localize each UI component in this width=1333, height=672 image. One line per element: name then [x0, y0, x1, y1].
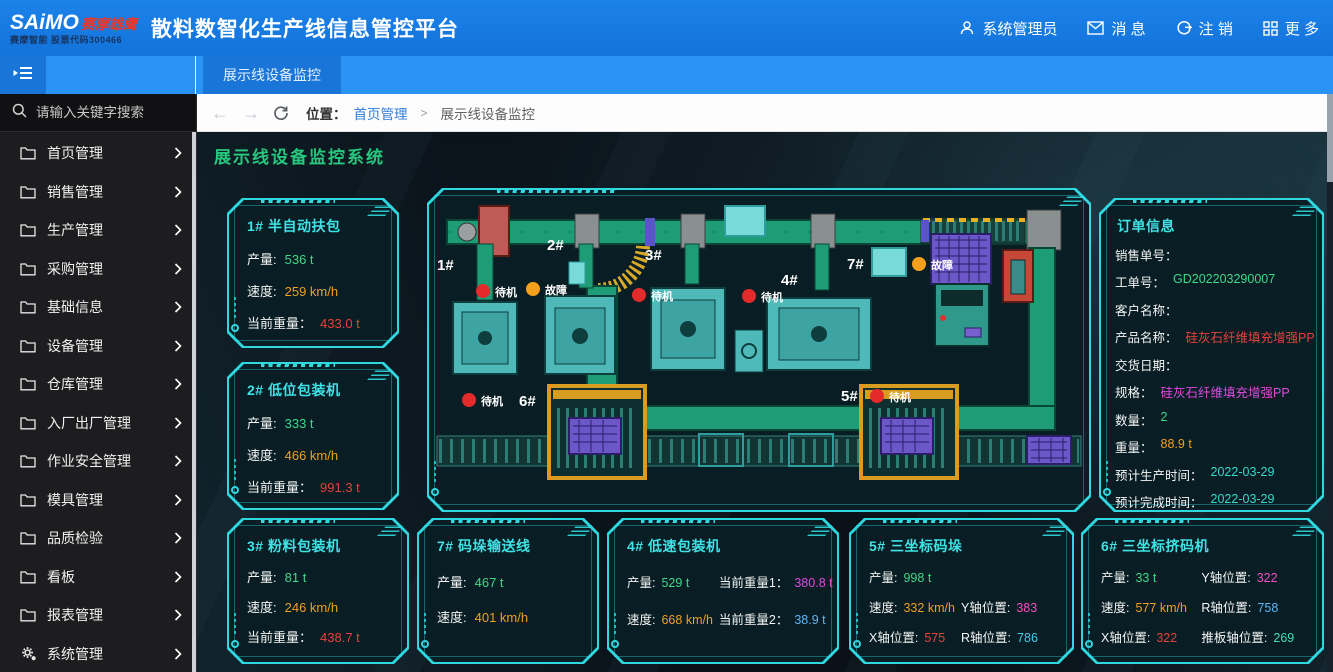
sidebar-item-label: 首页管理 — [47, 143, 174, 163]
panel-machine-2: 2# 低位包装机 产量:333 t 速度:466 km/h 当前重量：991.3… — [227, 362, 399, 510]
panel-machine-5: 5# 三坐标码垛 产量:998 t 速度:332 km/h Y轴位置:383 X… — [849, 518, 1074, 664]
metric-value: 433.0 t — [320, 316, 360, 331]
station-7-label: 7# — [847, 256, 864, 273]
metric-label: 当前重量： — [247, 627, 312, 646]
metric-label: Y轴位置: — [961, 597, 1010, 616]
logout-button[interactable]: 注 销 — [1176, 18, 1233, 39]
order-value: 2022-03-29 — [1211, 465, 1275, 484]
sidebar-item-quality[interactable]: 品质检验 — [0, 519, 196, 558]
metric-value: 322 — [1156, 631, 1177, 645]
order-value: 2022-03-29 — [1211, 492, 1275, 511]
breadcrumb-bar: ← → 位置： 首页管理 > 展示线设备监控 — [197, 94, 1333, 132]
sidebar-item-sales[interactable]: 销售管理 — [0, 173, 196, 212]
order-label: 重量： — [1115, 437, 1153, 456]
panel-title: 6# 三坐标挤码机 — [1101, 536, 1310, 556]
metric-value: 33 t — [1135, 571, 1156, 585]
conveyor-bottom-belt — [599, 406, 1055, 430]
sidebar-item-production[interactable]: 生产管理 — [0, 211, 196, 250]
production-line-diagram: 1# 待机 2# 故障 3# 待机 4# 待机 — [429, 190, 1089, 510]
metric-label: 速度: — [247, 281, 277, 300]
metric-value: 81 t — [285, 570, 307, 585]
metric-value: 575 — [924, 631, 945, 645]
sidebar-item-label: 品质检验 — [47, 528, 174, 548]
more-label: 更 多 — [1285, 18, 1319, 39]
folder-icon — [20, 339, 37, 353]
metric-value: 383 — [1016, 601, 1037, 615]
panel-machine-3: 3# 粉料包装机 产量:81 t 速度:246 km/h 当前重量：438.7 … — [227, 518, 409, 664]
messages-label: 消 息 — [1111, 18, 1145, 39]
order-label: 预计生产时间： — [1115, 465, 1203, 484]
status-dot-standby — [632, 288, 646, 302]
chevron-right-icon — [174, 224, 182, 236]
grid-icon — [1263, 21, 1278, 36]
station-2-label: 2# — [547, 237, 564, 254]
logo-subtitle: 赛摩智能 股票代码300466 — [10, 36, 137, 45]
refresh-icon[interactable] — [273, 105, 289, 121]
sidebar-item-system[interactable]: 系统管理 — [0, 635, 196, 672]
sidebar-scrollbar[interactable] — [192, 132, 196, 672]
metric-label: 产量: — [1101, 567, 1129, 586]
folder-icon — [20, 262, 37, 276]
metric-label: 速度: — [247, 597, 277, 616]
panel-machine-6: 6# 三坐标挤码机 产量:33 t Y轴位置:322 速度:577 km/h R… — [1081, 518, 1324, 664]
station-3-label: 3# — [645, 247, 662, 264]
station-1-label: 1# — [437, 257, 454, 274]
sidebar-item-label: 作业安全管理 — [47, 451, 174, 471]
metric-value: 786 — [1017, 631, 1038, 645]
order-label: 产品名称： — [1115, 327, 1178, 346]
sidebar-item-label: 报表管理 — [47, 605, 174, 625]
folder-icon — [20, 146, 37, 160]
metric-label: X轴位置: — [869, 627, 918, 646]
search-input[interactable] — [36, 105, 176, 120]
chevron-right-icon — [174, 571, 182, 583]
user-icon — [959, 20, 975, 36]
metric-label: 速度: — [627, 609, 655, 628]
order-label: 工单号： — [1115, 272, 1165, 291]
chevron-right-icon — [174, 301, 182, 313]
folder-icon — [20, 493, 37, 507]
app-window: SAiMO 赛摩雄鹰 赛摩智能 股票代码300466 散料数智化生产线信息管控平… — [0, 0, 1333, 672]
status-dot-fault — [526, 282, 540, 296]
station-3-status: 待机 — [650, 289, 673, 303]
status-dot-standby — [742, 289, 756, 303]
forward-icon[interactable]: → — [242, 104, 260, 122]
metric-value: 998 t — [903, 571, 931, 585]
logout-icon — [1176, 20, 1192, 36]
station-7-box — [872, 248, 906, 276]
sidebar-item-kanban[interactable]: 看板 — [0, 558, 196, 597]
sidebar-item-label: 入厂出厂管理 — [47, 413, 174, 433]
folder-icon — [20, 300, 37, 314]
panel-order-info: 订单信息 销售单号： 工单号：GD202203290007 客户名称： 产品名称… — [1099, 198, 1324, 512]
chevron-right-icon — [174, 378, 182, 390]
more-button[interactable]: 更 多 — [1263, 18, 1319, 39]
page-scrollbar[interactable] — [1327, 94, 1333, 672]
panel-machine-7: 7# 码垛输送线 产量:467 t 速度:401 km/h — [417, 518, 599, 664]
sidebar-item-label: 模具管理 — [47, 490, 174, 510]
panel-machine-4: 4# 低速包装机 产量:529 t 当前重量1：380.8 t 速度:668 k… — [607, 518, 839, 664]
sidebar-item-label: 仓库管理 — [47, 374, 174, 394]
metric-label: 当前重量2： — [719, 609, 788, 628]
chevron-right-icon — [174, 417, 182, 429]
gear-icon — [20, 646, 37, 661]
metric-label: X轴位置: — [1101, 627, 1150, 646]
metric-value: 269 — [1273, 631, 1294, 645]
metric-label: 产量: — [247, 249, 277, 268]
panel-title: 3# 粉料包装机 — [247, 536, 395, 556]
metric-label: 速度: — [247, 445, 277, 464]
order-label: 客户名称： — [1115, 300, 1178, 319]
strip-spacer — [46, 56, 196, 94]
metric-value: 467 t — [475, 575, 504, 590]
metric-label: 推板轴位置: — [1201, 627, 1267, 646]
breadcrumb-label: 位置： — [306, 103, 347, 123]
sidebar-item-mold[interactable]: 模具管理 — [0, 481, 196, 520]
folder-icon — [20, 608, 37, 622]
app-header: SAiMO 赛摩雄鹰 赛摩智能 股票代码300466 散料数智化生产线信息管控平… — [0, 0, 1333, 56]
dashboard-title: 展示线设备监控系统 — [214, 143, 385, 168]
sidebar-collapse-button[interactable] — [0, 56, 46, 94]
station-5-label: 5# — [841, 388, 858, 405]
order-label: 预计完成时间： — [1115, 492, 1203, 511]
sidebar-item-label: 设备管理 — [47, 336, 174, 356]
status-dot-fault — [912, 257, 926, 271]
mail-icon — [1087, 21, 1104, 35]
metric-value: 466 km/h — [285, 448, 338, 463]
metric-value: 322 — [1257, 571, 1278, 585]
status-dot-standby — [476, 284, 490, 298]
tab-display-line-monitor[interactable]: 展示线设备监控 — [203, 56, 341, 94]
sidebar-item-label: 系统管理 — [47, 644, 174, 664]
metric-value: 401 km/h — [475, 610, 528, 625]
panel-title: 4# 低速包装机 — [627, 536, 825, 556]
order-label: 销售单号： — [1115, 245, 1178, 264]
agv-robot — [931, 234, 991, 346]
metric-label: 当前重量1： — [719, 572, 788, 591]
panel-title: 订单信息 — [1117, 216, 1312, 236]
metric-label: 速度: — [1101, 597, 1129, 616]
folder-icon — [20, 454, 37, 468]
station-5-status: 待机 — [888, 390, 911, 404]
metric-value: 536 t — [285, 252, 314, 267]
station-6-label: 6# — [519, 393, 536, 410]
brand-logo: SAiMO 赛摩雄鹰 赛摩智能 股票代码300466 — [10, 12, 137, 45]
logo-text-cn: 赛摩雄鹰 — [81, 17, 137, 31]
metric-value: 438.7 t — [320, 630, 360, 645]
app-title: 散料数智化生产线信息管控平台 — [151, 13, 459, 43]
folder-icon — [20, 377, 37, 391]
curve-conveyor — [597, 246, 643, 290]
metric-label: 产量: — [627, 572, 655, 591]
metric-value: 529 t — [661, 576, 689, 590]
chevron-right-icon — [174, 340, 182, 352]
user-menu[interactable]: 系统管理员 — [959, 18, 1057, 39]
chevron-right-icon — [174, 609, 182, 621]
order-value: 硅灰石纤维填充增强PP — [1161, 382, 1290, 401]
chevron-right-icon — [174, 186, 182, 198]
collapse-menu-icon — [13, 65, 33, 86]
user-name: 系统管理员 — [982, 18, 1057, 39]
status-dot-standby — [870, 389, 884, 403]
folder-icon — [20, 416, 37, 430]
metric-label: R轴位置: — [1201, 597, 1251, 616]
order-value: 硅灰石纤维填充增强PP — [1186, 327, 1315, 346]
sidebar-item-label: 销售管理 — [47, 182, 174, 202]
metric-value: 758 — [1257, 601, 1278, 615]
chevron-right-icon — [174, 494, 182, 506]
sidebar-item-equipment[interactable]: 设备管理 — [0, 327, 196, 366]
breadcrumb-root-link[interactable]: 首页管理 — [354, 103, 408, 123]
station-6-status: 待机 — [480, 394, 503, 408]
metric-label: 速度: — [869, 597, 897, 616]
order-value: 2 — [1161, 410, 1168, 429]
chevron-right-icon — [174, 147, 182, 159]
sidebar-item-label: 采购管理 — [47, 259, 174, 279]
sidebar-item-home[interactable]: 首页管理 — [0, 134, 196, 173]
metric-label: Y轴位置: — [1201, 567, 1250, 586]
status-dot-standby — [462, 393, 476, 407]
sidebar-item-base-info[interactable]: 基础信息 — [0, 288, 196, 327]
stacker-machine — [1003, 250, 1033, 302]
sidebar-item-purchasing[interactable]: 采购管理 — [0, 250, 196, 289]
feeder-wheel — [458, 223, 476, 241]
chevron-right-icon — [174, 263, 182, 275]
station-2-status: 故障 — [545, 283, 567, 297]
machine-2 — [545, 296, 615, 374]
messages-button[interactable]: 消 息 — [1087, 18, 1145, 39]
panel-title: 7# 码垛输送线 — [437, 536, 585, 556]
chevron-right-icon — [174, 532, 182, 544]
folder-icon — [20, 531, 37, 545]
metric-label: 产量: — [247, 413, 277, 432]
breadcrumb-current: 展示线设备监控 — [441, 103, 536, 123]
metric-label: R轴位置: — [961, 627, 1011, 646]
panel-title: 2# 低位包装机 — [247, 380, 385, 400]
metric-value: 246 km/h — [285, 600, 338, 615]
metric-value: 668 km/h — [661, 613, 712, 627]
tab-bar: 展示线设备监控 — [0, 56, 1333, 94]
order-value: GD202203290007 — [1173, 272, 1275, 291]
chevron-right-icon — [174, 648, 182, 660]
panel-title: 1# 半自动扶包 — [247, 216, 385, 236]
order-label: 规格： — [1115, 382, 1153, 401]
metric-label: 当前重量： — [247, 313, 312, 332]
wrapper-station-6 — [549, 386, 645, 478]
metric-label: 产量: — [869, 567, 897, 586]
panel-machine-1: 1# 半自动扶包 产量:536 t 速度:259 km/h 当前重量：433.0… — [227, 198, 399, 348]
back-icon[interactable]: ← — [211, 104, 229, 122]
breadcrumb-separator: > — [421, 106, 428, 120]
station-4-label: 4# — [781, 272, 798, 289]
folder-icon — [20, 223, 37, 237]
machine-1 — [453, 302, 517, 374]
metric-value: 577 km/h — [1135, 601, 1186, 615]
metric-value: 259 km/h — [285, 284, 338, 299]
metric-value: 332 km/h — [903, 601, 954, 615]
order-label: 交货日期： — [1115, 355, 1178, 374]
metric-value: 380.8 t — [794, 576, 832, 590]
sidebar-item-safety[interactable]: 作业安全管理 — [0, 442, 196, 481]
logout-label: 注 销 — [1199, 18, 1233, 39]
station-7-status: 故障 — [931, 258, 953, 272]
metric-label: 产量: — [247, 567, 277, 586]
logo-text: SAiMO — [10, 12, 79, 33]
panel-line-diagram: 1# 待机 2# 故障 3# 待机 4# 待机 — [427, 188, 1091, 512]
tab-label: 展示线设备监控 — [223, 65, 321, 85]
search-icon — [12, 103, 27, 123]
sidebar-item-gate[interactable]: 入厂出厂管理 — [0, 404, 196, 443]
panel-title: 5# 三坐标码垛 — [869, 536, 1060, 556]
order-label: 数量： — [1115, 410, 1153, 429]
folder-icon — [20, 185, 37, 199]
order-value: 88.9 t — [1161, 437, 1192, 456]
sidebar-item-label: 看板 — [47, 567, 174, 587]
monitor-dashboard: 展示线设备监控系统 1# 半自动扶包 产量:536 t 速度:259 km/h … — [197, 132, 1333, 672]
sidebar-menu: 首页管理 销售管理 生产管理 采购管理 基础信息 设备管理 仓库管理 入厂出厂管… — [0, 132, 196, 672]
sidebar-item-reports[interactable]: 报表管理 — [0, 596, 196, 635]
sidebar-item-warehouse[interactable]: 仓库管理 — [0, 365, 196, 404]
metric-value: 333 t — [285, 416, 314, 431]
folder-icon — [20, 570, 37, 584]
sidebar-search — [0, 94, 196, 132]
chevron-right-icon — [174, 455, 182, 467]
metric-label: 当前重量： — [247, 477, 312, 496]
metric-label: 速度: — [437, 607, 467, 626]
station-4-status: 待机 — [760, 290, 783, 304]
metric-label: 产量: — [437, 572, 467, 591]
sidebar-item-label: 基础信息 — [47, 297, 174, 317]
sidebar: 首页管理 销售管理 生产管理 采购管理 基础信息 设备管理 仓库管理 入厂出厂管… — [0, 94, 197, 672]
metric-value: 38.9 t — [794, 613, 825, 627]
machine-4 — [735, 298, 871, 372]
station-1-status: 待机 — [494, 285, 517, 299]
sidebar-item-label: 生产管理 — [47, 220, 174, 240]
metric-value: 991.3 t — [320, 480, 360, 495]
